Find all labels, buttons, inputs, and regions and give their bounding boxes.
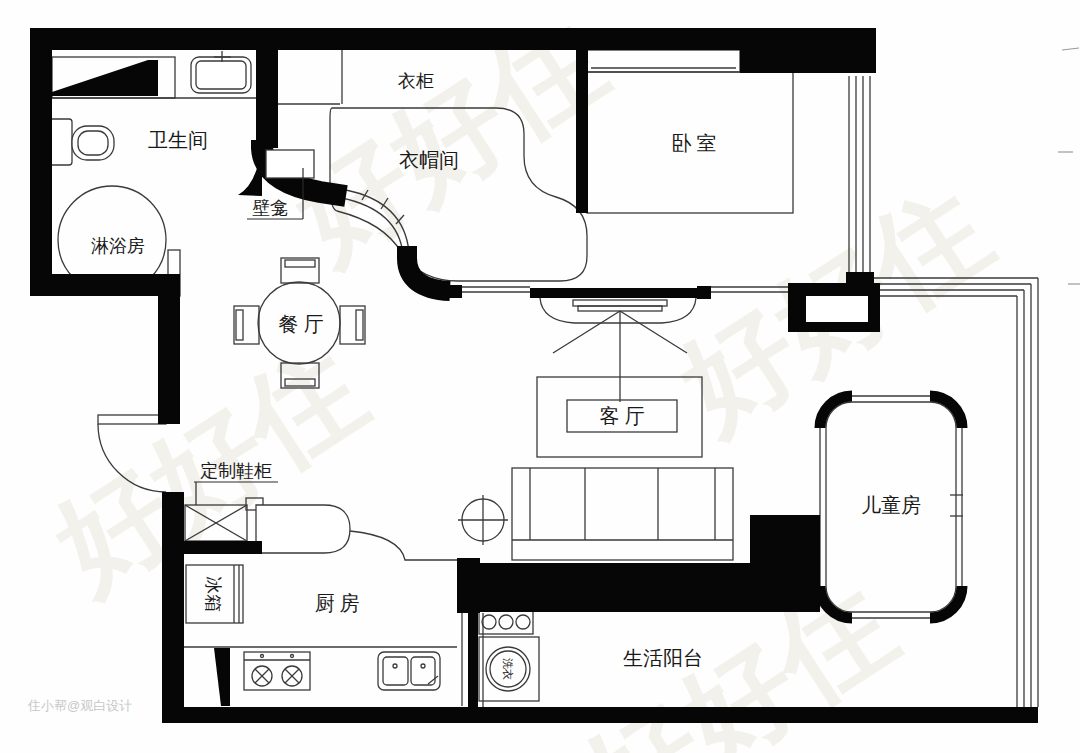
label-bathroom: 卫生间	[148, 129, 208, 151]
wall-left	[30, 28, 52, 296]
floor-plan-svg: 好好住 好好住 好好住 好好住	[0, 0, 1080, 753]
label-kids-room: 儿童房	[861, 494, 921, 516]
niche-opening	[266, 150, 314, 178]
dining-chair	[234, 306, 259, 344]
credit-watermark: 住小帮@观白设计	[27, 698, 132, 713]
label-bedroom: 卧 室	[672, 132, 717, 154]
dimension-ticks	[1058, 48, 1080, 284]
label-wardrobe: 衣柜	[398, 71, 434, 91]
label-kitchen: 厨 房	[315, 592, 360, 614]
wall-tv	[530, 288, 708, 298]
label-washer: 洗衣	[502, 658, 514, 680]
wall-top-right	[740, 28, 876, 73]
label-niche: 壁龛	[252, 198, 288, 218]
pier-opening	[806, 296, 868, 322]
gas-stove	[244, 652, 310, 690]
floor-plan: 好好住 好好住 好好住 好好住	[0, 0, 1080, 753]
wall-bath-right	[256, 48, 278, 148]
toilet	[42, 119, 114, 165]
side-table	[458, 495, 508, 545]
wall-dining-left	[158, 296, 180, 424]
dining-chair	[281, 258, 319, 283]
wall-bath-step	[30, 274, 180, 296]
wall-kitchen-wedge	[214, 648, 230, 706]
label-fridge: 冰箱	[203, 576, 223, 612]
sofa	[512, 468, 733, 560]
kitchen-entry-curve	[350, 531, 457, 560]
dining-chair	[340, 306, 365, 344]
label-dining: 餐 厅	[279, 313, 324, 335]
wall-bedroom-left	[576, 48, 588, 213]
wall-bottom	[162, 707, 1038, 723]
label-balcony: 生活阳台	[623, 647, 703, 669]
wall-shoe-band	[162, 541, 262, 554]
wardrobe-area	[278, 48, 342, 104]
entry-door-leaf	[98, 415, 166, 424]
wall-curve-hall	[407, 246, 450, 291]
bed-headboard	[587, 50, 740, 72]
wall-bath-wedge	[52, 60, 158, 96]
label-living: 客 厅	[600, 405, 645, 427]
label-shoe-cabinet: 定制鞋柜	[200, 461, 272, 481]
kitchen-sink	[378, 652, 440, 690]
washbasin	[191, 51, 251, 93]
kitchen-counter-peninsula	[256, 505, 350, 553]
wall-lower-left	[162, 492, 184, 723]
label-cloakroom: 衣帽间	[399, 149, 459, 171]
label-shower: 淋浴房	[91, 236, 145, 256]
balcony-cabinet	[479, 611, 533, 634]
